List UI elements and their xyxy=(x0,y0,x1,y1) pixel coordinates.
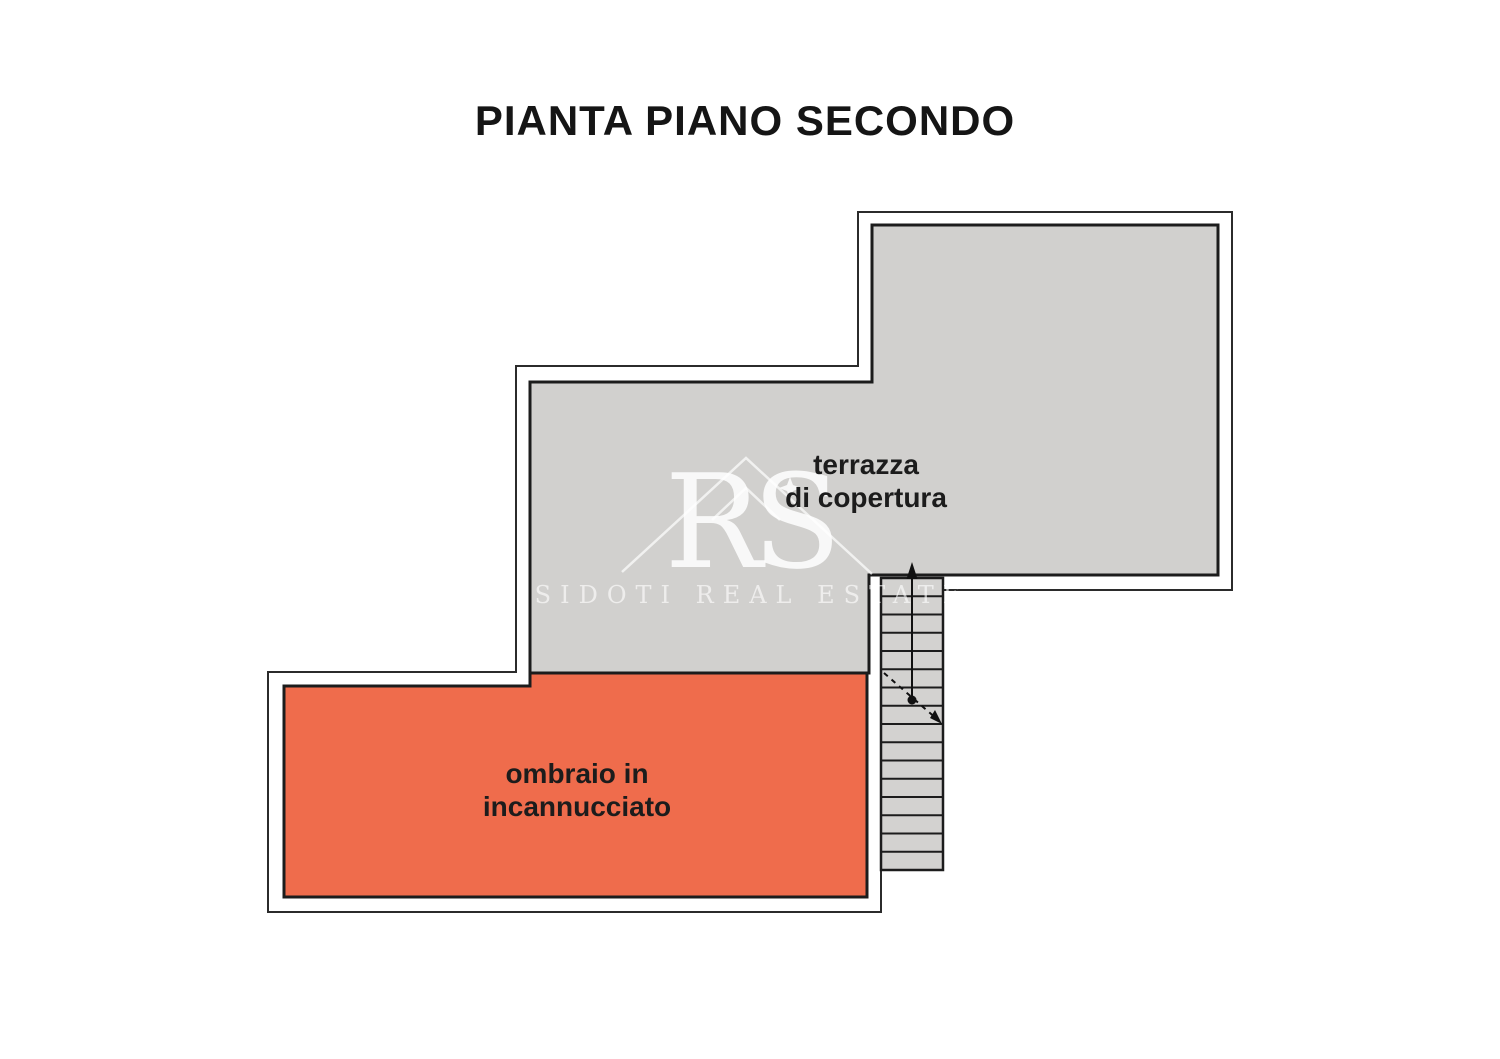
plan-title: PIANTA PIANO SECONDO xyxy=(475,97,1015,144)
shade-label-line2: incannucciato xyxy=(483,791,671,822)
watermark-monogram: RS xyxy=(665,446,833,598)
watermark-brand: SIDOTI REAL ESTATE xyxy=(535,581,970,609)
floor-plan-svg: PIANTA PIANO SECONDO xyxy=(0,0,1500,1059)
shade-label-line1: ombraio in xyxy=(505,758,648,789)
terrace-label-line2: di copertura xyxy=(785,482,947,513)
terrace-label-line1: terrazza xyxy=(813,449,919,480)
floor-plan-page: PIANTA PIANO SECONDO xyxy=(0,0,1500,1059)
